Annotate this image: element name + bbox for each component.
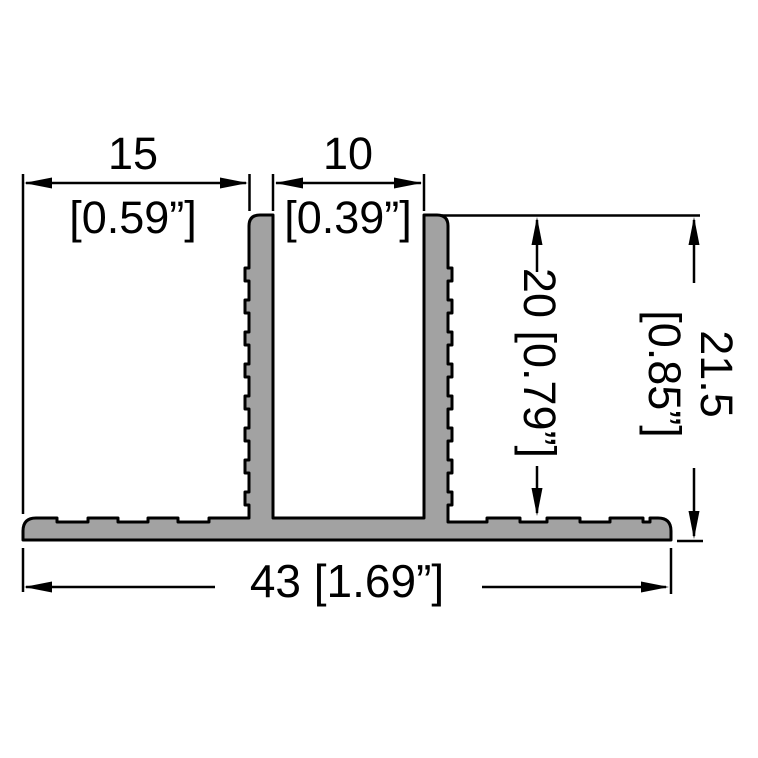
arrow-20-down <box>532 488 543 516</box>
drawing-canvas: 15 [0.59”] 10 [0.39”] 20 [0.79”] 21.5 [0… <box>0 0 758 758</box>
arrow-20-up <box>532 217 543 245</box>
arrow-43-left <box>24 582 52 593</box>
arrow-15-right <box>220 178 248 189</box>
dim-label-10-inch: [0.39”] <box>248 193 448 243</box>
dim-label-21-5-inch: [0.85”] <box>638 289 690 459</box>
profile-cross-section <box>23 215 671 540</box>
dim-label-10-mm: 10 <box>248 129 448 179</box>
dim-label-21-5: 21.5 [0.85”] <box>638 289 742 459</box>
arrow-10-left <box>275 178 303 189</box>
dim-label-20: 20 [0.79”] <box>512 253 564 473</box>
dim-label-21-5-mm: 21.5 <box>690 289 742 459</box>
arrow-43-right <box>641 582 669 593</box>
dim-label-15-inch: [0.59”] <box>33 193 233 243</box>
arrow-21-5-up <box>689 217 700 245</box>
dim-label-15-mm: 15 <box>33 129 233 179</box>
arrow-10-right <box>394 178 422 189</box>
arrow-21-5-down <box>689 511 700 539</box>
arrow-15-left <box>24 178 52 189</box>
dim-label-43: 43 [1.69”] <box>147 556 547 606</box>
